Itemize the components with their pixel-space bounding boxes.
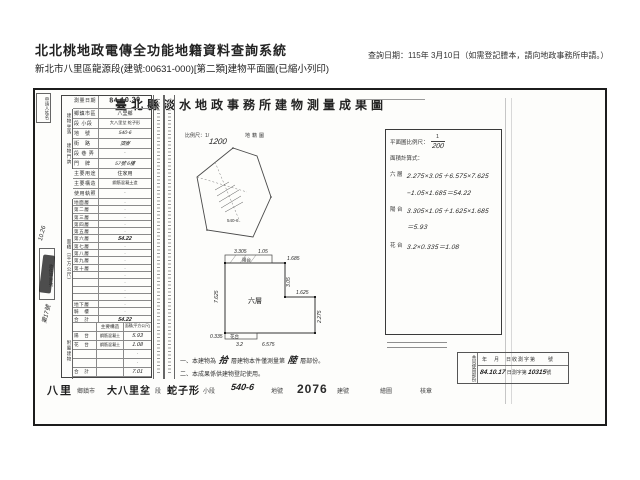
formula-label: 面積計算式：: [390, 154, 497, 162]
verification-seal-label: 核章: [420, 386, 432, 395]
subsection-label: 小段: [203, 386, 215, 395]
handwritten-floor-count: 拾: [218, 353, 229, 366]
table-rows: 測量日期84.10.30 鄉鎮市區八里鄉 段 小段大八里坌 蛇子形 地 號540…: [73, 96, 151, 377]
table-row: 主要構造鋼筋混凝土造: [73, 179, 151, 189]
table-row: 段 小段大八里坌 蛇子形: [73, 119, 151, 129]
lot-number: 540-6: [230, 382, 254, 392]
note-line-1: 一、本建物為拾層建物本件僅測量第陸層部份。: [180, 353, 450, 366]
plan-center-label: 六層: [248, 296, 262, 305]
query-date: 查詢日期：115年 3月10日（如需登記謄本，請向地政事務所申請。）: [368, 50, 608, 61]
building-number-label: 建號: [337, 386, 349, 395]
handwritten-survey-date: 84.10.17: [480, 369, 506, 376]
receipt-side-label: 共同使用部份: [458, 353, 478, 383]
floor-plan: 3.305 1.05 1.685 7.625 3.05 2.275 1.625 …: [200, 245, 345, 350]
building-number: 2076: [297, 382, 328, 396]
vertical-notes-strip: [164, 95, 175, 379]
floor-row-measured: 第六層54.22: [73, 235, 151, 242]
floor-row: 第四層·: [73, 221, 151, 228]
side-label-annex: 附屬建物: [62, 323, 73, 379]
cadastral-map-label: 地籍圖: [245, 132, 266, 139]
floor-total-row: 合 計54.22: [73, 316, 151, 323]
scale-fraction: 1200: [431, 135, 445, 150]
dim-left: 7.625: [214, 290, 220, 303]
dim-step: 1.625: [296, 290, 309, 296]
dim-top-left: 3.305: [234, 249, 247, 255]
floor-row: 地面層·: [73, 199, 151, 206]
sketch-lot-number: 540-6: [227, 218, 239, 223]
cadastral-sketch: 540-6: [185, 142, 285, 247]
floor-row: ·: [73, 272, 151, 279]
calc-line: ＝5.93: [390, 221, 497, 231]
section-label: 段: [155, 386, 161, 395]
floor-row: 騎 樓·: [73, 308, 151, 315]
table-row: 使用執照·: [73, 189, 151, 199]
cadastral-scale-label: 比例尺：1/: [185, 132, 209, 139]
plan-scale-line: 平面圖比例尺：1200: [390, 135, 497, 150]
lot-label: 地號: [271, 386, 283, 395]
town-name: 八里: [47, 382, 73, 398]
table-row: 街 路頂寮: [73, 139, 151, 149]
case-receipt-box: 共同使用部份 年 月 日收測字第 號 84.10.17 日測字第 10315號: [457, 352, 569, 384]
floor-row: 第十層·: [73, 265, 151, 272]
table-row: 地 號540-6: [73, 129, 151, 139]
dim-bottom-left: 0.335: [210, 334, 223, 340]
document-subtitle: 新北市八里區龍源段(建號:00631-000)[第二類]建物平面圖(已縮小列印): [35, 61, 329, 75]
floor-row: ·: [73, 287, 151, 294]
calc-line: 六 層2.275×3.05＋6.575×7.625: [390, 170, 497, 180]
area-calculation-box: 平面圖比例尺：1200 面積計算式： 六 層2.275×3.05＋6.575×7…: [385, 129, 502, 335]
note-line-2: 二、本成果係供建物登記使用。: [180, 369, 450, 378]
side-label-location: 建物坐落: [62, 109, 73, 139]
calc-line: 陽 台3.305×1.05＋1.625×1.685: [390, 205, 497, 215]
vertical-notes-strip: [153, 95, 164, 379]
annex-row: ·: [73, 359, 151, 368]
floor-row: 第七層·: [73, 243, 151, 250]
floor-row: 第三層·: [73, 214, 151, 221]
calc-line: 花 台3.2×0.335＝1.08: [390, 241, 497, 251]
building-info-table: 建物坐落 建物門牌 面積（平方公尺） 附屬建物 測量日期84.10.30 鄉鎮市…: [61, 95, 152, 378]
annex-header-row: 主要構造面積(平方公尺): [73, 323, 151, 332]
floor-row: 第九層·: [73, 257, 151, 264]
table-row: 測量日期84.10.30: [73, 96, 151, 109]
annex-row: 陽 台鋼筋混凝土5.93: [73, 332, 151, 341]
handwritten-case-number: 10315: [528, 369, 547, 376]
system-title: 北北桃地政電傳全功能地籍資料查詢系統: [35, 40, 287, 59]
side-label-area: 面積（平方公尺）: [62, 199, 73, 323]
scan-document: 臺北縣淡水地政事務所建物測量成果圖 申請人姓名 建物坐落 建物門牌 面積（平方公…: [33, 88, 607, 426]
town-label: 鄉鎮市: [77, 386, 95, 395]
floor-row: 第八層·: [73, 250, 151, 257]
dim-right-lower: 2.275: [317, 310, 323, 324]
floor-row: 第二層·: [73, 206, 151, 213]
side-label-address: 建物門牌: [62, 139, 73, 169]
dim-right-upper: 3.05: [286, 277, 292, 287]
floor-row: ·: [73, 279, 151, 286]
dim-top-mid: 1.05: [258, 249, 268, 255]
table-row: 主要用途住家用: [73, 169, 151, 179]
plan-balcony-label: 陽台: [242, 257, 251, 264]
floor-row: ·: [73, 294, 151, 301]
handwritten-receipt-date: 10.26: [38, 225, 47, 241]
handwritten-measured-floor: 陸: [287, 353, 298, 366]
receipt-line-2: 84.10.17 日測字第 10315號: [478, 366, 568, 376]
annex-total-row: 合 計7.01: [73, 368, 151, 377]
dim-top-right: 1.685: [287, 256, 300, 262]
applicant-name-box: 申請人姓名: [36, 93, 51, 123]
drafter-label: 繪圖: [380, 386, 392, 395]
table-row: 鄉鎮市區八里鄉: [73, 109, 151, 119]
handwritten-receipt-number: 第17號: [39, 304, 52, 324]
dim-flower-length: 3.2: [236, 342, 243, 348]
table-row: 段 巷 弄·: [73, 149, 151, 159]
subsection-name: 蛇子形: [167, 382, 200, 397]
section-name: 大八里坌: [107, 382, 151, 397]
annex-row: 花 台鋼筋混凝土1.08: [73, 341, 151, 350]
floor-row: 地下層·: [73, 301, 151, 308]
scan-artifact-line: [357, 99, 425, 100]
plan-flower-label: 花台: [230, 333, 239, 340]
illegible-fine-print: [387, 337, 447, 349]
receipt-line-1: 年 月 日收測字第 號: [478, 353, 568, 366]
calc-line: −1.05×1.685＝54.22: [390, 187, 497, 197]
dim-bottom: 6.575: [262, 342, 275, 348]
calc-lines: 六 層2.275×3.05＋6.575×7.625 −1.05×1.685＝54…: [390, 170, 497, 251]
survey-notes: 一、本建物為拾層建物本件僅測量第陸層部份。 二、本成果係供建物登記使用。: [180, 353, 450, 381]
annex-row: ·: [73, 350, 151, 359]
table-row: 門 牌57號 6樓: [73, 159, 151, 169]
